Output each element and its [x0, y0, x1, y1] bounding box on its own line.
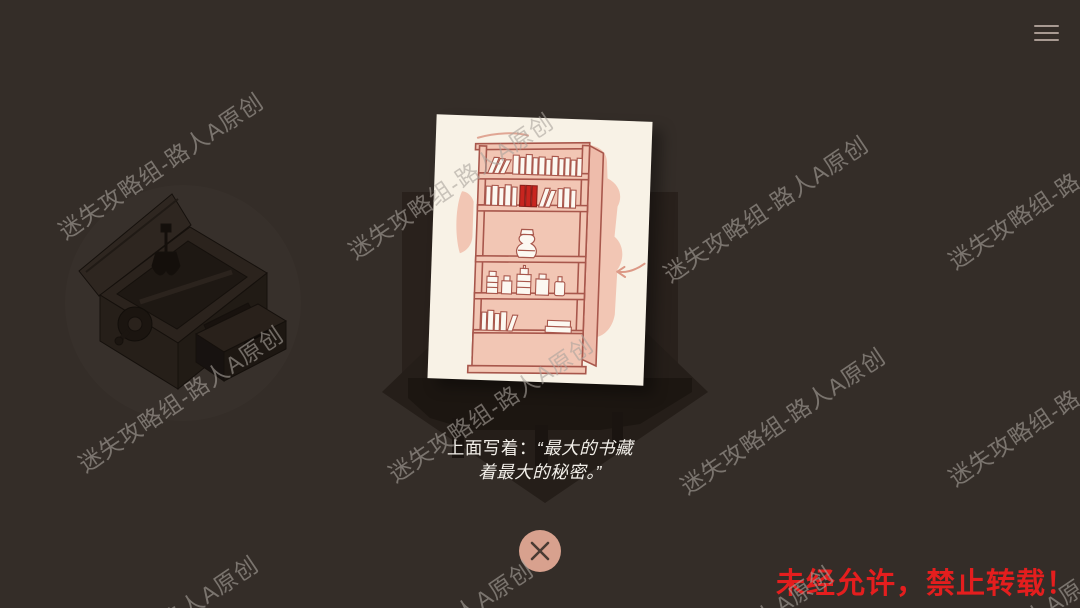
repost-warning: 未经允许，禁止转载！	[776, 560, 1076, 602]
game-screen: 上面写着：“最大的书藏 着最大的秘密。” 迷失攻略组-路人A原创 迷失攻略组-路…	[0, 0, 1080, 608]
close-button[interactable]	[519, 530, 561, 572]
caption-quote-line2: 着最大的秘密。”	[478, 462, 602, 482]
hamburger-icon	[1034, 25, 1060, 42]
arrow-icon	[617, 263, 644, 278]
note-caption: 上面写着：“最大的书藏 着最大的秘密。”	[0, 436, 1080, 484]
caption-quote-line1: “最大的书藏	[537, 438, 633, 458]
red-book	[520, 185, 526, 206]
caption-prefix: 上面写着：	[447, 438, 537, 458]
red-book	[526, 185, 532, 206]
note-paper[interactable]	[427, 114, 652, 385]
x-icon	[519, 530, 561, 572]
bookshelf-drawing	[427, 114, 652, 385]
menu-button[interactable]	[1034, 22, 1060, 44]
red-book	[532, 186, 538, 207]
